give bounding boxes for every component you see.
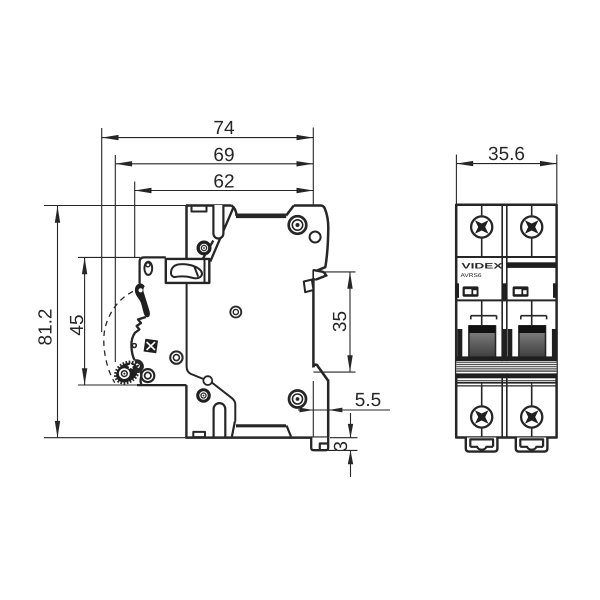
svg-text:62: 62 (213, 172, 234, 193)
svg-text:35.6: 35.6 (488, 144, 525, 165)
svg-text:5.5: 5.5 (355, 390, 381, 411)
svg-text:3: 3 (331, 441, 352, 452)
svg-text:AVRS6: AVRS6 (461, 273, 482, 279)
svg-text:74: 74 (213, 118, 235, 139)
svg-text:45: 45 (67, 314, 88, 335)
svg-text:81.2: 81.2 (36, 309, 57, 346)
svg-text:35: 35 (330, 311, 351, 332)
svg-text:VIDEX: VIDEX (462, 261, 504, 270)
svg-text:69: 69 (213, 145, 234, 166)
